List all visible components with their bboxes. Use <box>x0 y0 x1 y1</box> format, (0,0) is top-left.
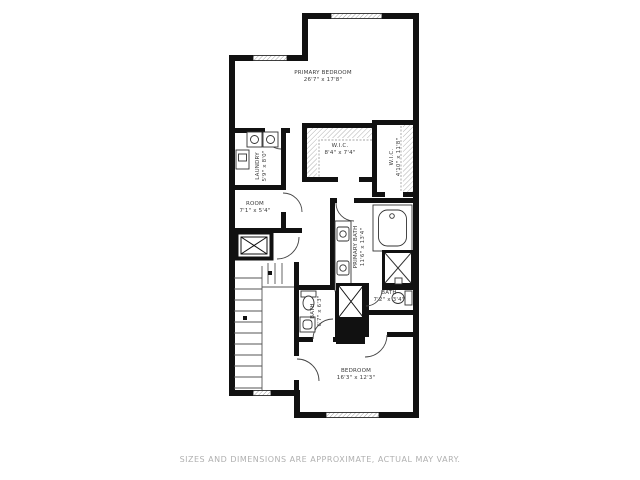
elevator-shaft-icon <box>237 233 272 259</box>
primary-bath-fixtures <box>335 205 413 291</box>
room-label-wic-1: W.I.C. 8'4" x 7'4" <box>324 143 355 157</box>
window-icon <box>253 56 287 61</box>
room-label-primary-bedroom: PRIMARY BEDROOM 26'7" x 17'8" <box>294 70 352 84</box>
room-name: PRIMARY BEDROOM <box>294 70 352 77</box>
closet-hatch-icon <box>307 138 317 177</box>
room-label-laundry: LAUNDRY 5'9" x 8'0" <box>255 150 269 181</box>
stairs-icon <box>234 263 294 390</box>
room-name: W.I.C. <box>389 138 396 176</box>
room-label-wic-2: W.I.C. 4'10" x 11'8" <box>389 138 403 176</box>
room-label-bedroom: BEDROOM 16'3" x 12'3" <box>337 368 375 382</box>
room-name: PRIMARY BATH <box>353 226 360 269</box>
room-dims: 7'1" x 5'4" <box>239 208 270 215</box>
hall-shower <box>338 285 364 319</box>
room-name: BEDROOM <box>337 368 375 375</box>
door-arc-icon <box>336 203 354 221</box>
room-dims: 7'2" x 3'4" <box>373 297 404 304</box>
room-dims: 6'7" x 6'3" <box>317 295 324 326</box>
room-label-bath-right: BATH 7'2" x 3'4" <box>373 290 404 304</box>
room-dims: 11'6" x 13'4" <box>360 226 367 269</box>
floorplan-canvas: PRIMARY BEDROOM 26'7" x 17'8" W.I.C. 8'4… <box>0 0 640 480</box>
toilet-icon <box>405 291 412 305</box>
room-name: W.I.C. <box>324 143 355 150</box>
room-dims: 8'4" x 7'4" <box>324 150 355 157</box>
room-name: BATH <box>373 290 404 297</box>
door-arc-icon <box>365 335 387 357</box>
closet-hatch-icon <box>307 128 372 138</box>
window-icon <box>326 413 379 418</box>
door-arc-icon <box>277 237 299 259</box>
room-dims: 26'7" x 17'8" <box>294 77 352 84</box>
disclaimer-text: SIZES AND DIMENSIONS ARE APPROXIMATE, AC… <box>180 455 461 464</box>
closet-hatch-icon <box>403 125 413 192</box>
room-label-primary-bath: PRIMARY BATH 11'6" x 13'4" <box>353 226 367 269</box>
door-arc-icon <box>297 359 319 381</box>
room-name: ROOM <box>239 201 270 208</box>
window-icon <box>331 14 382 19</box>
room-label-bath-left: BATH 6'7" x 6'3" <box>310 295 324 326</box>
door-arc-icon <box>283 193 302 212</box>
room-label-room: ROOM 7'1" x 5'4" <box>239 201 270 215</box>
window-icon <box>253 391 271 396</box>
room-dims: 5'9" x 8'0" <box>262 150 269 181</box>
room-dims: 4'10" x 11'8" <box>396 138 403 176</box>
room-name: LAUNDRY <box>255 150 262 181</box>
room-dims: 16'3" x 12'3" <box>337 375 375 382</box>
room-name: BATH <box>310 295 317 326</box>
